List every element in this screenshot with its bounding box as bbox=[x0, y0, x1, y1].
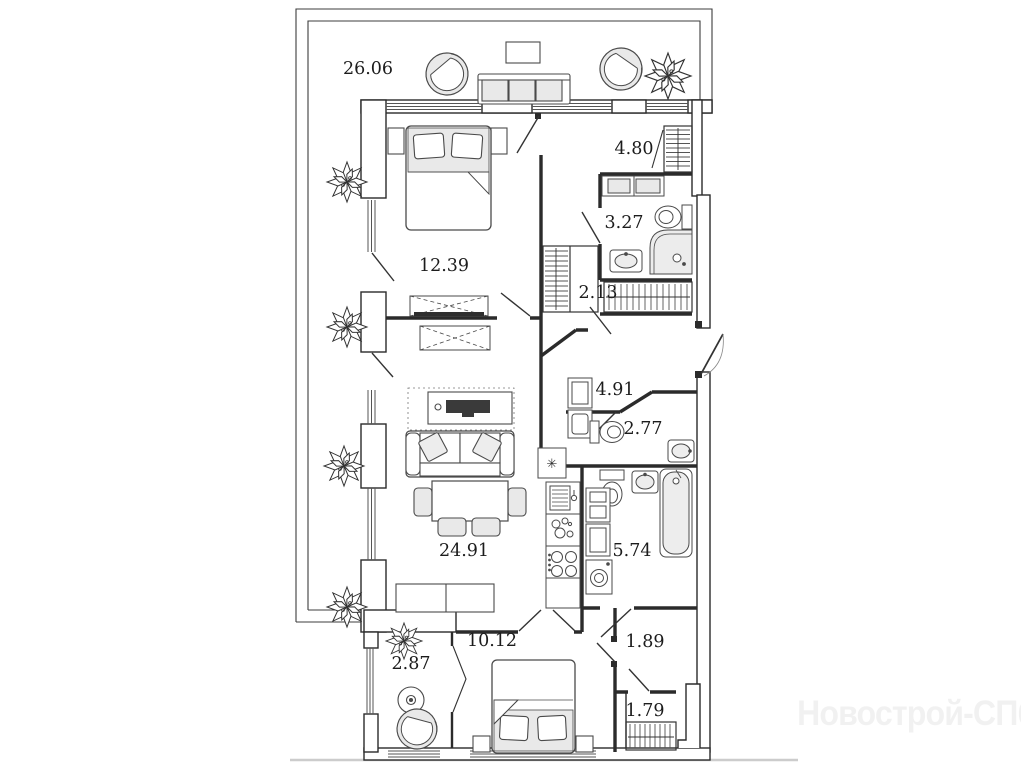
bath-sink-icon bbox=[632, 471, 658, 493]
kitchen-counter bbox=[546, 482, 580, 608]
nightstand bbox=[473, 736, 490, 752]
room-area-label-entry-hall: 4.80 bbox=[615, 139, 654, 159]
nightstand bbox=[491, 128, 507, 154]
room-area-label-balcony: 2.87 bbox=[392, 654, 431, 674]
balcony-folding-door bbox=[453, 646, 466, 712]
room-area-label-wardrobe-niche: 2.13 bbox=[579, 283, 618, 303]
laundry-counter bbox=[602, 176, 664, 196]
terrace-furniture bbox=[417, 40, 650, 104]
plant-icon bbox=[327, 587, 367, 627]
sofa bbox=[406, 431, 514, 477]
tv-icon bbox=[446, 400, 490, 413]
bedroom-2-furniture bbox=[473, 660, 593, 753]
living-room-furniture bbox=[396, 388, 526, 612]
shower-icon bbox=[650, 230, 692, 274]
plant-icon bbox=[645, 53, 691, 99]
room-area-label-terrace: 26.06 bbox=[343, 59, 393, 79]
room-area-label-living-kitchen: 24.91 bbox=[439, 541, 489, 561]
toilet-icon bbox=[655, 205, 692, 229]
wc-sink-icon bbox=[668, 440, 694, 462]
bathroom-sink-icon bbox=[610, 250, 642, 272]
room-area-label-hall-2: 1.89 bbox=[626, 632, 665, 652]
room-area-label-bedroom-1: 12.39 bbox=[419, 256, 469, 276]
toilet-icon bbox=[590, 421, 624, 443]
floor-plan-page: ✳ bbox=[0, 0, 1021, 768]
nightstand bbox=[576, 736, 593, 752]
washing-machine-icon bbox=[586, 560, 612, 594]
dresser bbox=[410, 296, 490, 350]
terrace-sofa bbox=[478, 74, 570, 104]
nightstand bbox=[388, 128, 404, 154]
watermark: Новострой-СПб bbox=[797, 694, 1003, 734]
kitchen-furniture: ✳ bbox=[538, 378, 592, 608]
tall-cabinet bbox=[586, 488, 610, 556]
entry-door-jamb bbox=[695, 321, 702, 328]
plant-icon bbox=[327, 307, 367, 347]
bathroom-2-fixtures bbox=[586, 469, 692, 594]
terrace-table bbox=[506, 42, 540, 63]
terrace-chair-left bbox=[417, 44, 476, 103]
fridge-column bbox=[568, 378, 592, 438]
room-area-label-wc: 2.77 bbox=[624, 419, 663, 439]
entry-door-leaf bbox=[701, 334, 723, 374]
dining-table bbox=[414, 481, 526, 536]
balcony-furniture bbox=[393, 687, 442, 753]
terrace-chair-right bbox=[592, 40, 650, 98]
room-area-label-bedroom-2: 10.12 bbox=[467, 631, 517, 651]
cabinet-row bbox=[396, 584, 494, 612]
room-area-label-hallway: 4.91 bbox=[596, 380, 635, 400]
balcony-chair bbox=[393, 705, 442, 754]
room-area-label-closet: 1.79 bbox=[626, 701, 665, 721]
plant-icon bbox=[327, 162, 367, 202]
floor-plan-canvas: ✳ bbox=[0, 0, 1021, 768]
vent-shaft-symbol: ✳ bbox=[547, 457, 558, 472]
room-area-label-bathroom-2: 5.74 bbox=[613, 541, 652, 561]
bathtub-icon bbox=[660, 469, 692, 557]
room-area-label-bathroom-1: 3.27 bbox=[605, 213, 644, 233]
plant-icon bbox=[324, 446, 364, 486]
